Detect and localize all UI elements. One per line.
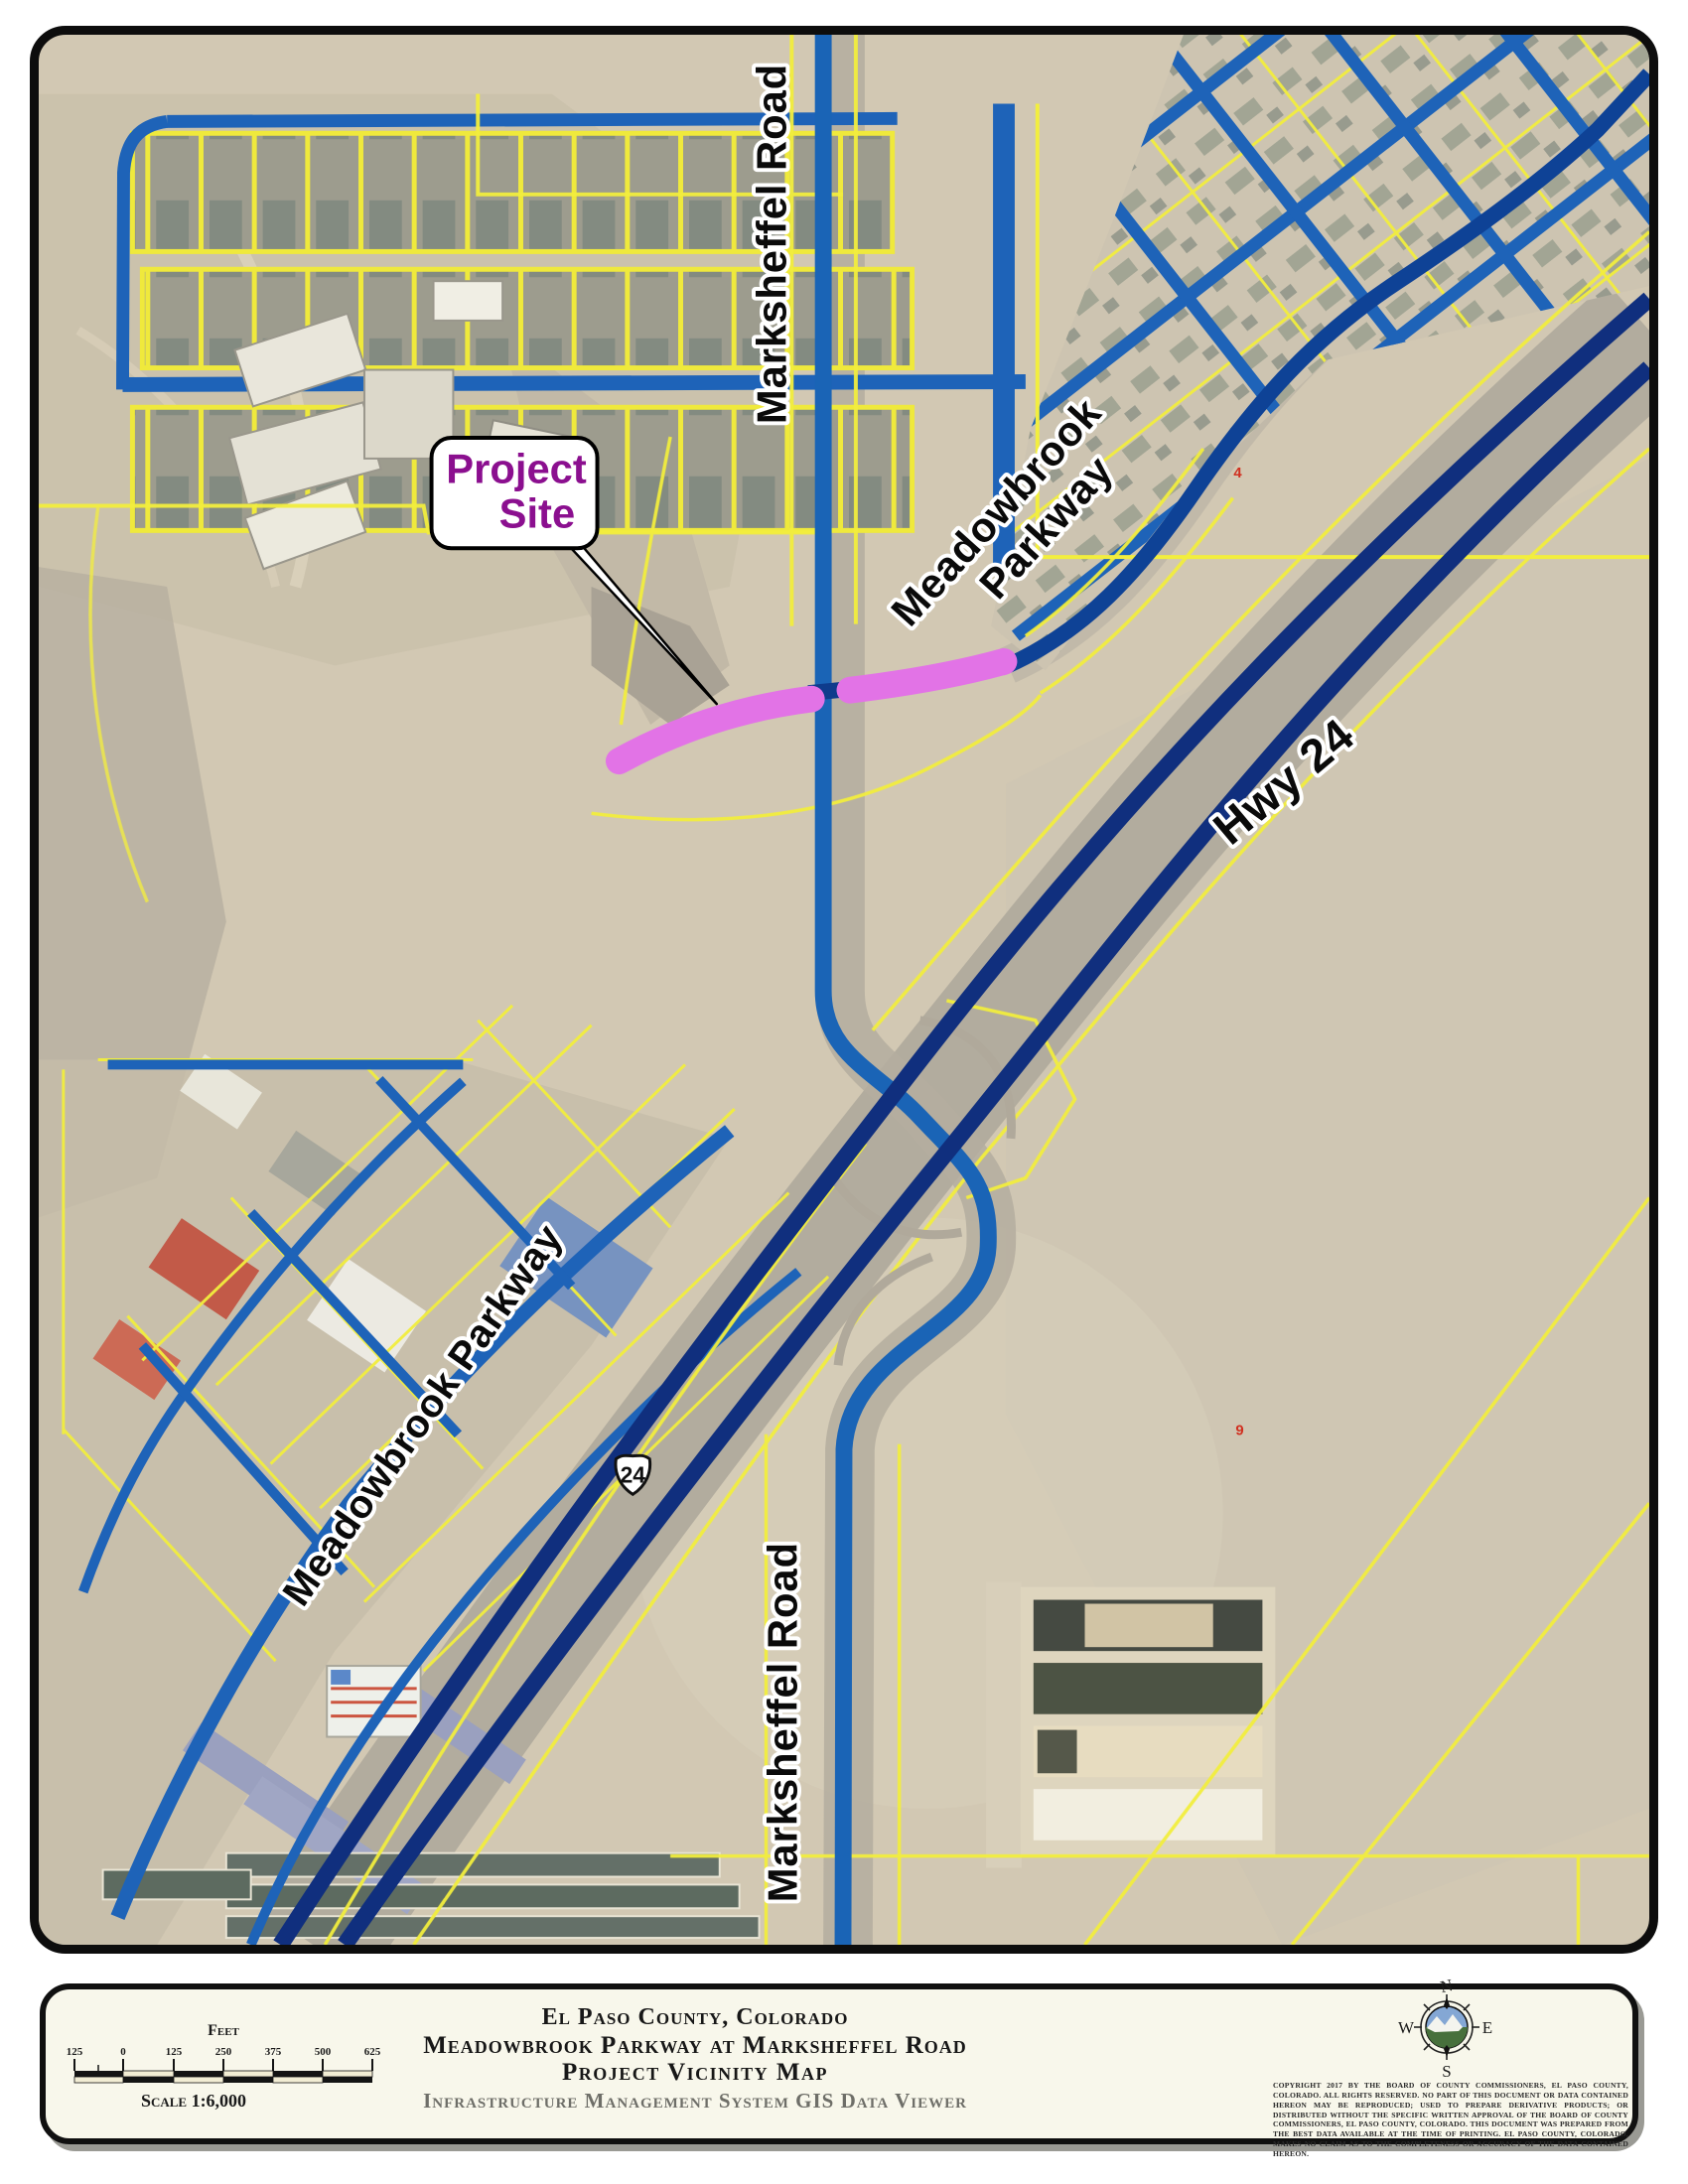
scale-ticks [74,2059,372,2071]
treatment-ponds [986,1582,1275,1868]
compass-east: E [1482,2018,1492,2037]
title-subtitle: Infrastructure Management System GIS Dat… [387,2086,1003,2116]
map-graphics: Project Site 24 4 9 Marksheffel Road Mar… [39,35,1649,1945]
scale-bands [74,2071,372,2083]
callout-line1: Project [446,446,587,492]
red-lot-marker-4: 4 [1233,466,1242,481]
project-site-callout: Project Site [432,438,598,548]
red-lot-marker-9: 9 [1235,1424,1243,1439]
scale-tick-0: 125 [67,2046,83,2058]
title-county: El Paso County, Colorado [387,2003,1003,2032]
scale-tick-5: 500 [315,2046,332,2058]
aerial-map-canvas: Project Site 24 4 9 Marksheffel Road Mar… [30,26,1658,1954]
title-project: Meadowbrook Parkway at Marksheffel Road [387,2032,1003,2059]
title-map-type: Project Vicinity Map [387,2059,1003,2086]
scale-tick-2: 125 [166,2046,183,2058]
scale-bar: Feet 125 0 125 250 375 500 625 Scale 1:6… [55,2015,392,2115]
compass-west: W [1398,2018,1415,2037]
label-marksheffel-road-bottom: Marksheffel Road [759,1542,805,1902]
scale-tick-1: 0 [120,2046,126,2058]
scale-ratio-text: Scale 1:6,000 [141,2091,246,2111]
scale-tick-3: 250 [215,2046,232,2058]
callout-line2: Site [499,489,576,536]
scale-tick-4: 375 [265,2046,282,2058]
copyright-disclaimer: Copyright 2017 by the Board of County Co… [1273,2081,1628,2159]
compass-north: N [1439,1976,1455,1996]
compass-south: S [1442,2062,1451,2079]
label-marksheffel-road-top: Marksheffel Road [748,64,794,424]
footer-titles: El Paso County, Colorado Meadowbrook Par… [387,2003,1003,2116]
scale-tick-6: 625 [364,2046,381,2058]
shield-number: 24 [621,1461,646,1487]
scale-unit-label: Feet [208,2022,239,2039]
project-vicinity-map-page: { "colors": { "road_blue": "#1a60b2", "h… [0,0,1688,2184]
compass-rose-icon: N E S W [1397,1976,1496,2079]
